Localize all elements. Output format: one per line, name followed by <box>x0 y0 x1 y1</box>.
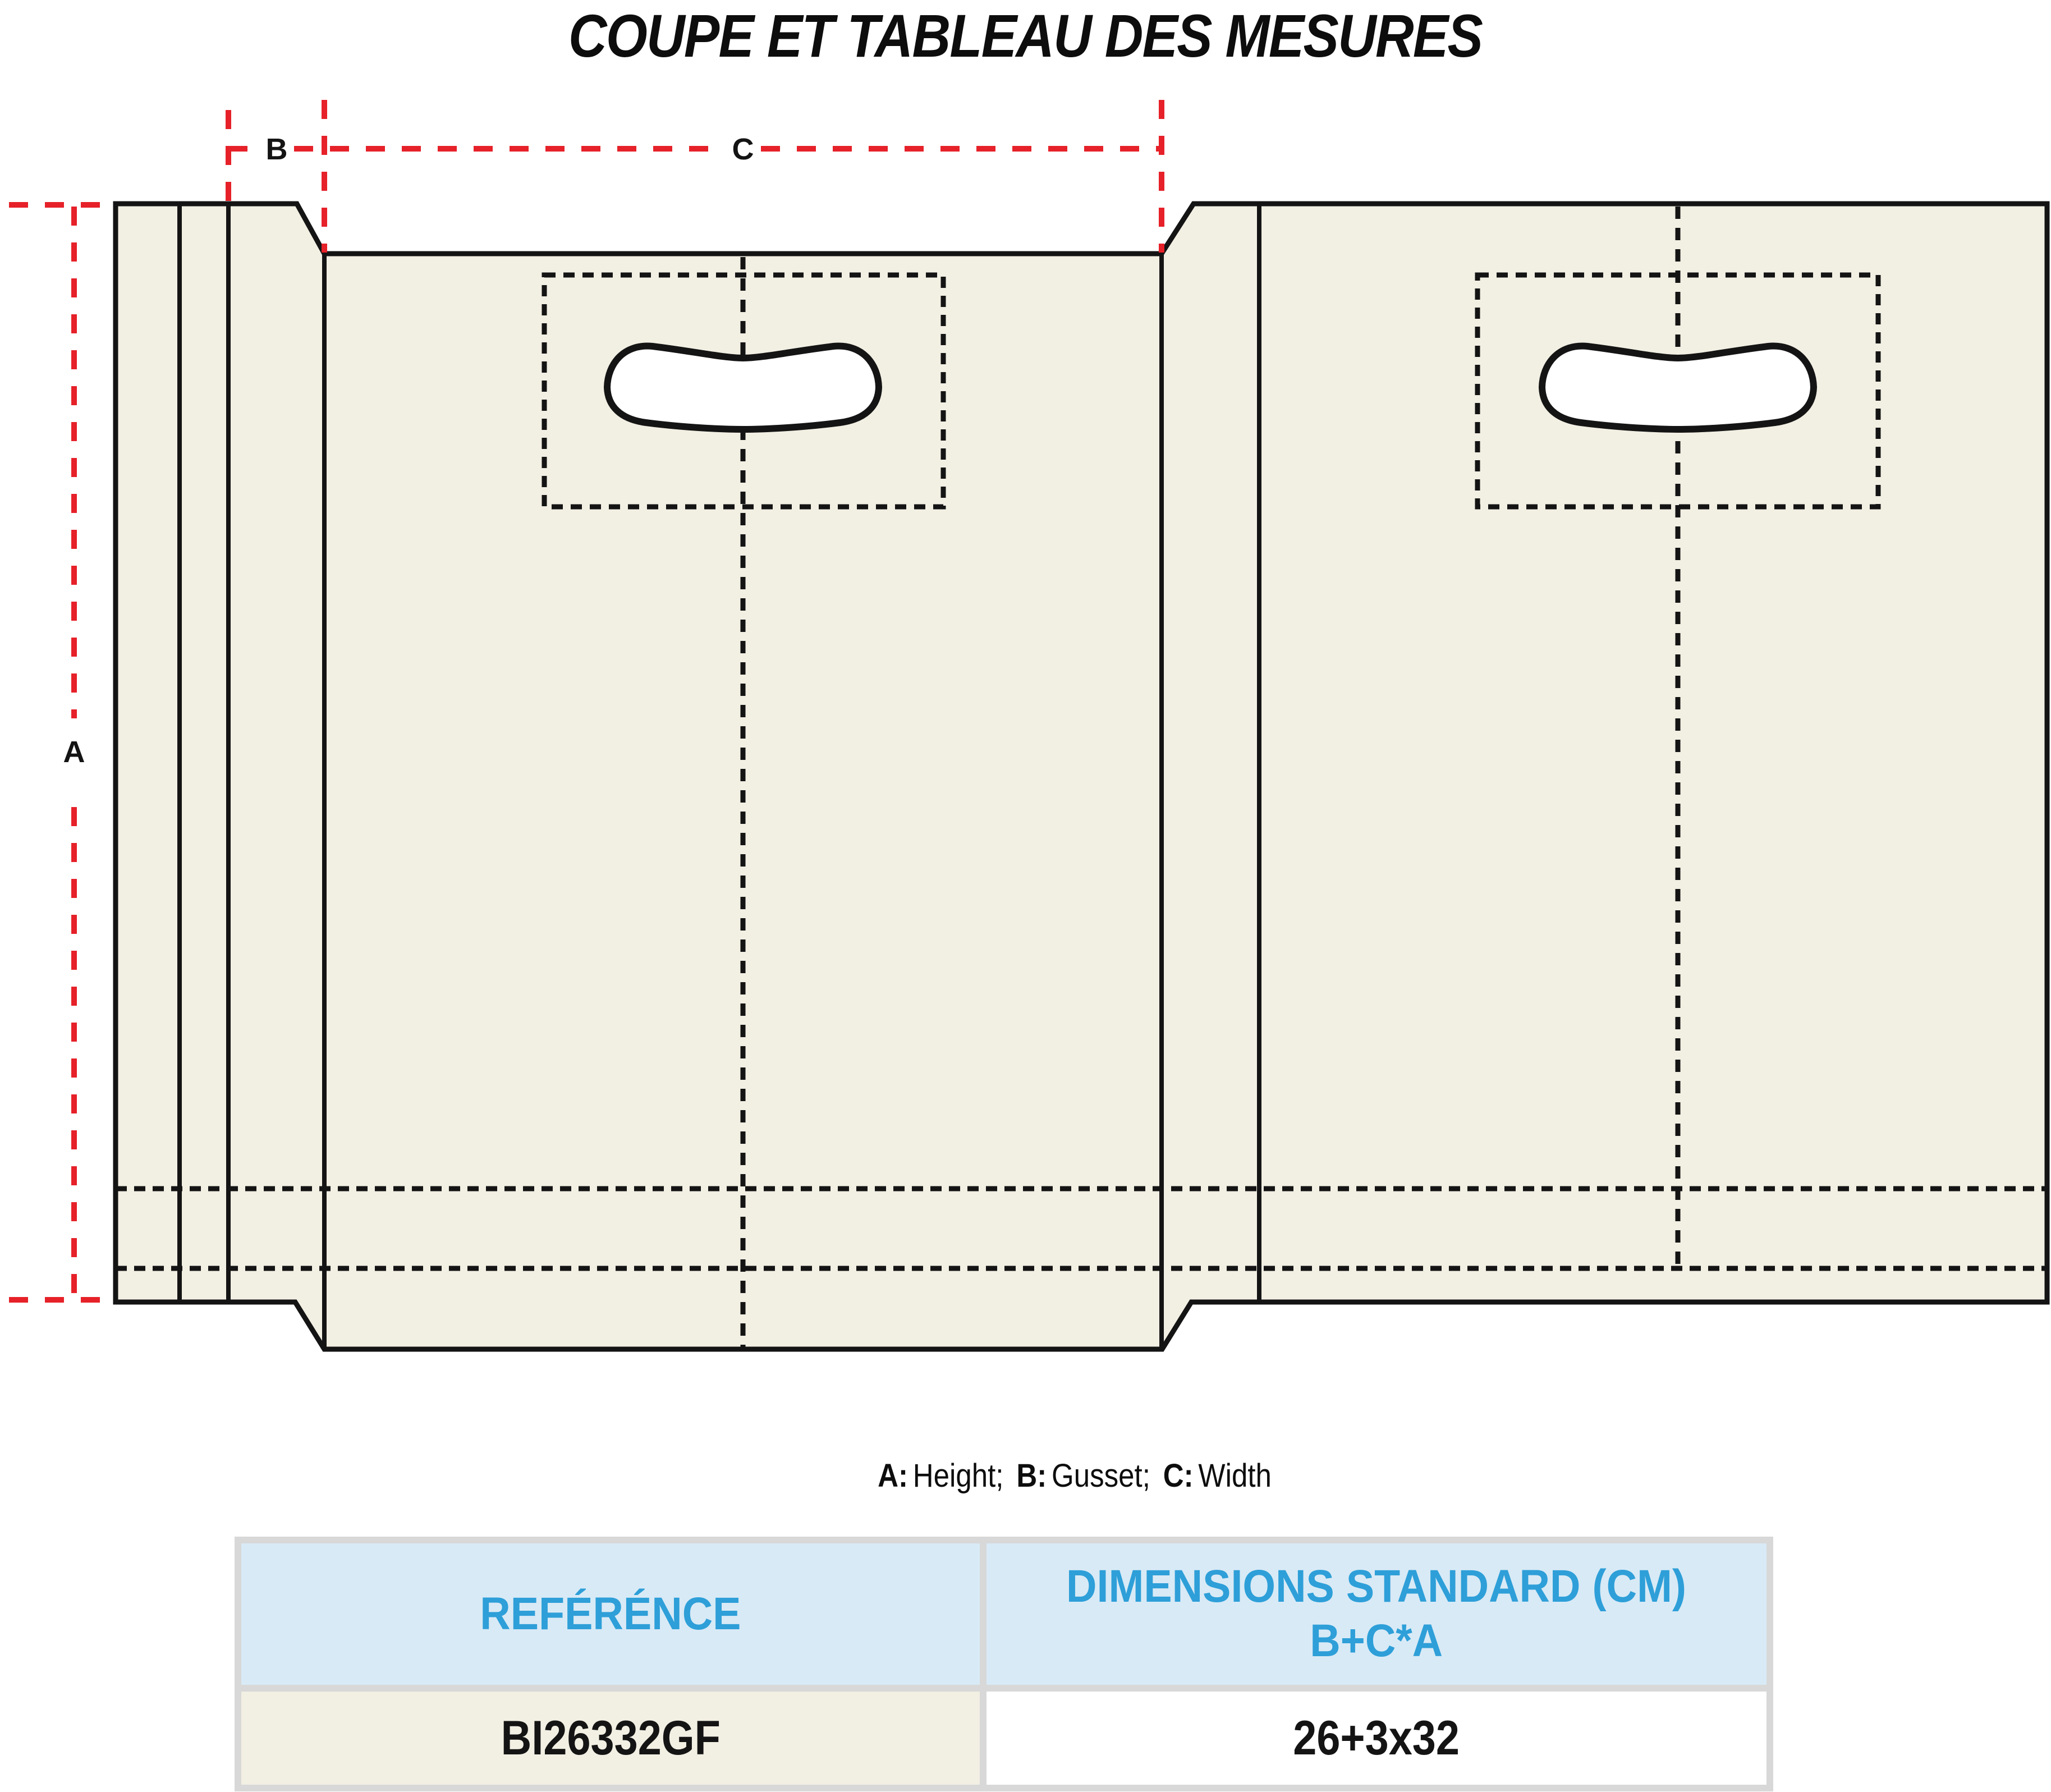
legend-b-key: B: <box>1016 1458 1047 1494</box>
legend-c-value: Width <box>1198 1458 1271 1494</box>
table-header-dimensions-line2: B+C*A <box>1310 1614 1443 1669</box>
table-cell-dimensions-text: 26+3x32 <box>1293 1711 1460 1766</box>
dim-label-c: C <box>732 132 754 166</box>
front-handle-cutout <box>607 346 879 429</box>
table-header-reference-text: REFÉRÉNCE <box>480 1587 741 1642</box>
table-header-reference: REFÉRÉNCE <box>241 1543 980 1685</box>
table-cell-reference: BI26332GF <box>241 1692 980 1785</box>
bag-cut-diagram: A B C <box>0 0 2051 1792</box>
legend: A:Height;B:Gusset;C:Width <box>878 1457 1272 1495</box>
legend-c-key: C: <box>1163 1458 1194 1494</box>
legend-a-key: A: <box>878 1458 908 1494</box>
dimensions-table: REFÉRÉNCE DIMENSIONS STANDARD (CM) B+C*A… <box>235 1537 1773 1791</box>
table-cell-reference-text: BI26332GF <box>501 1711 720 1766</box>
table-header-dimensions: DIMENSIONS STANDARD (CM) B+C*A <box>987 1543 1766 1685</box>
legend-a-value: Height; <box>913 1458 1004 1494</box>
table-header-dimensions-line1: DIMENSIONS STANDARD (CM) <box>1066 1560 1686 1614</box>
dim-label-b: B <box>266 132 288 166</box>
legend-b-value: Gusset; <box>1052 1458 1150 1494</box>
table-cell-dimensions: 26+3x32 <box>987 1692 1766 1785</box>
dim-label-a: A <box>63 735 85 769</box>
page: COUPE ET TABLEAU DES MESURES <box>0 0 2051 1792</box>
back-handle-cutout <box>1542 346 1814 429</box>
